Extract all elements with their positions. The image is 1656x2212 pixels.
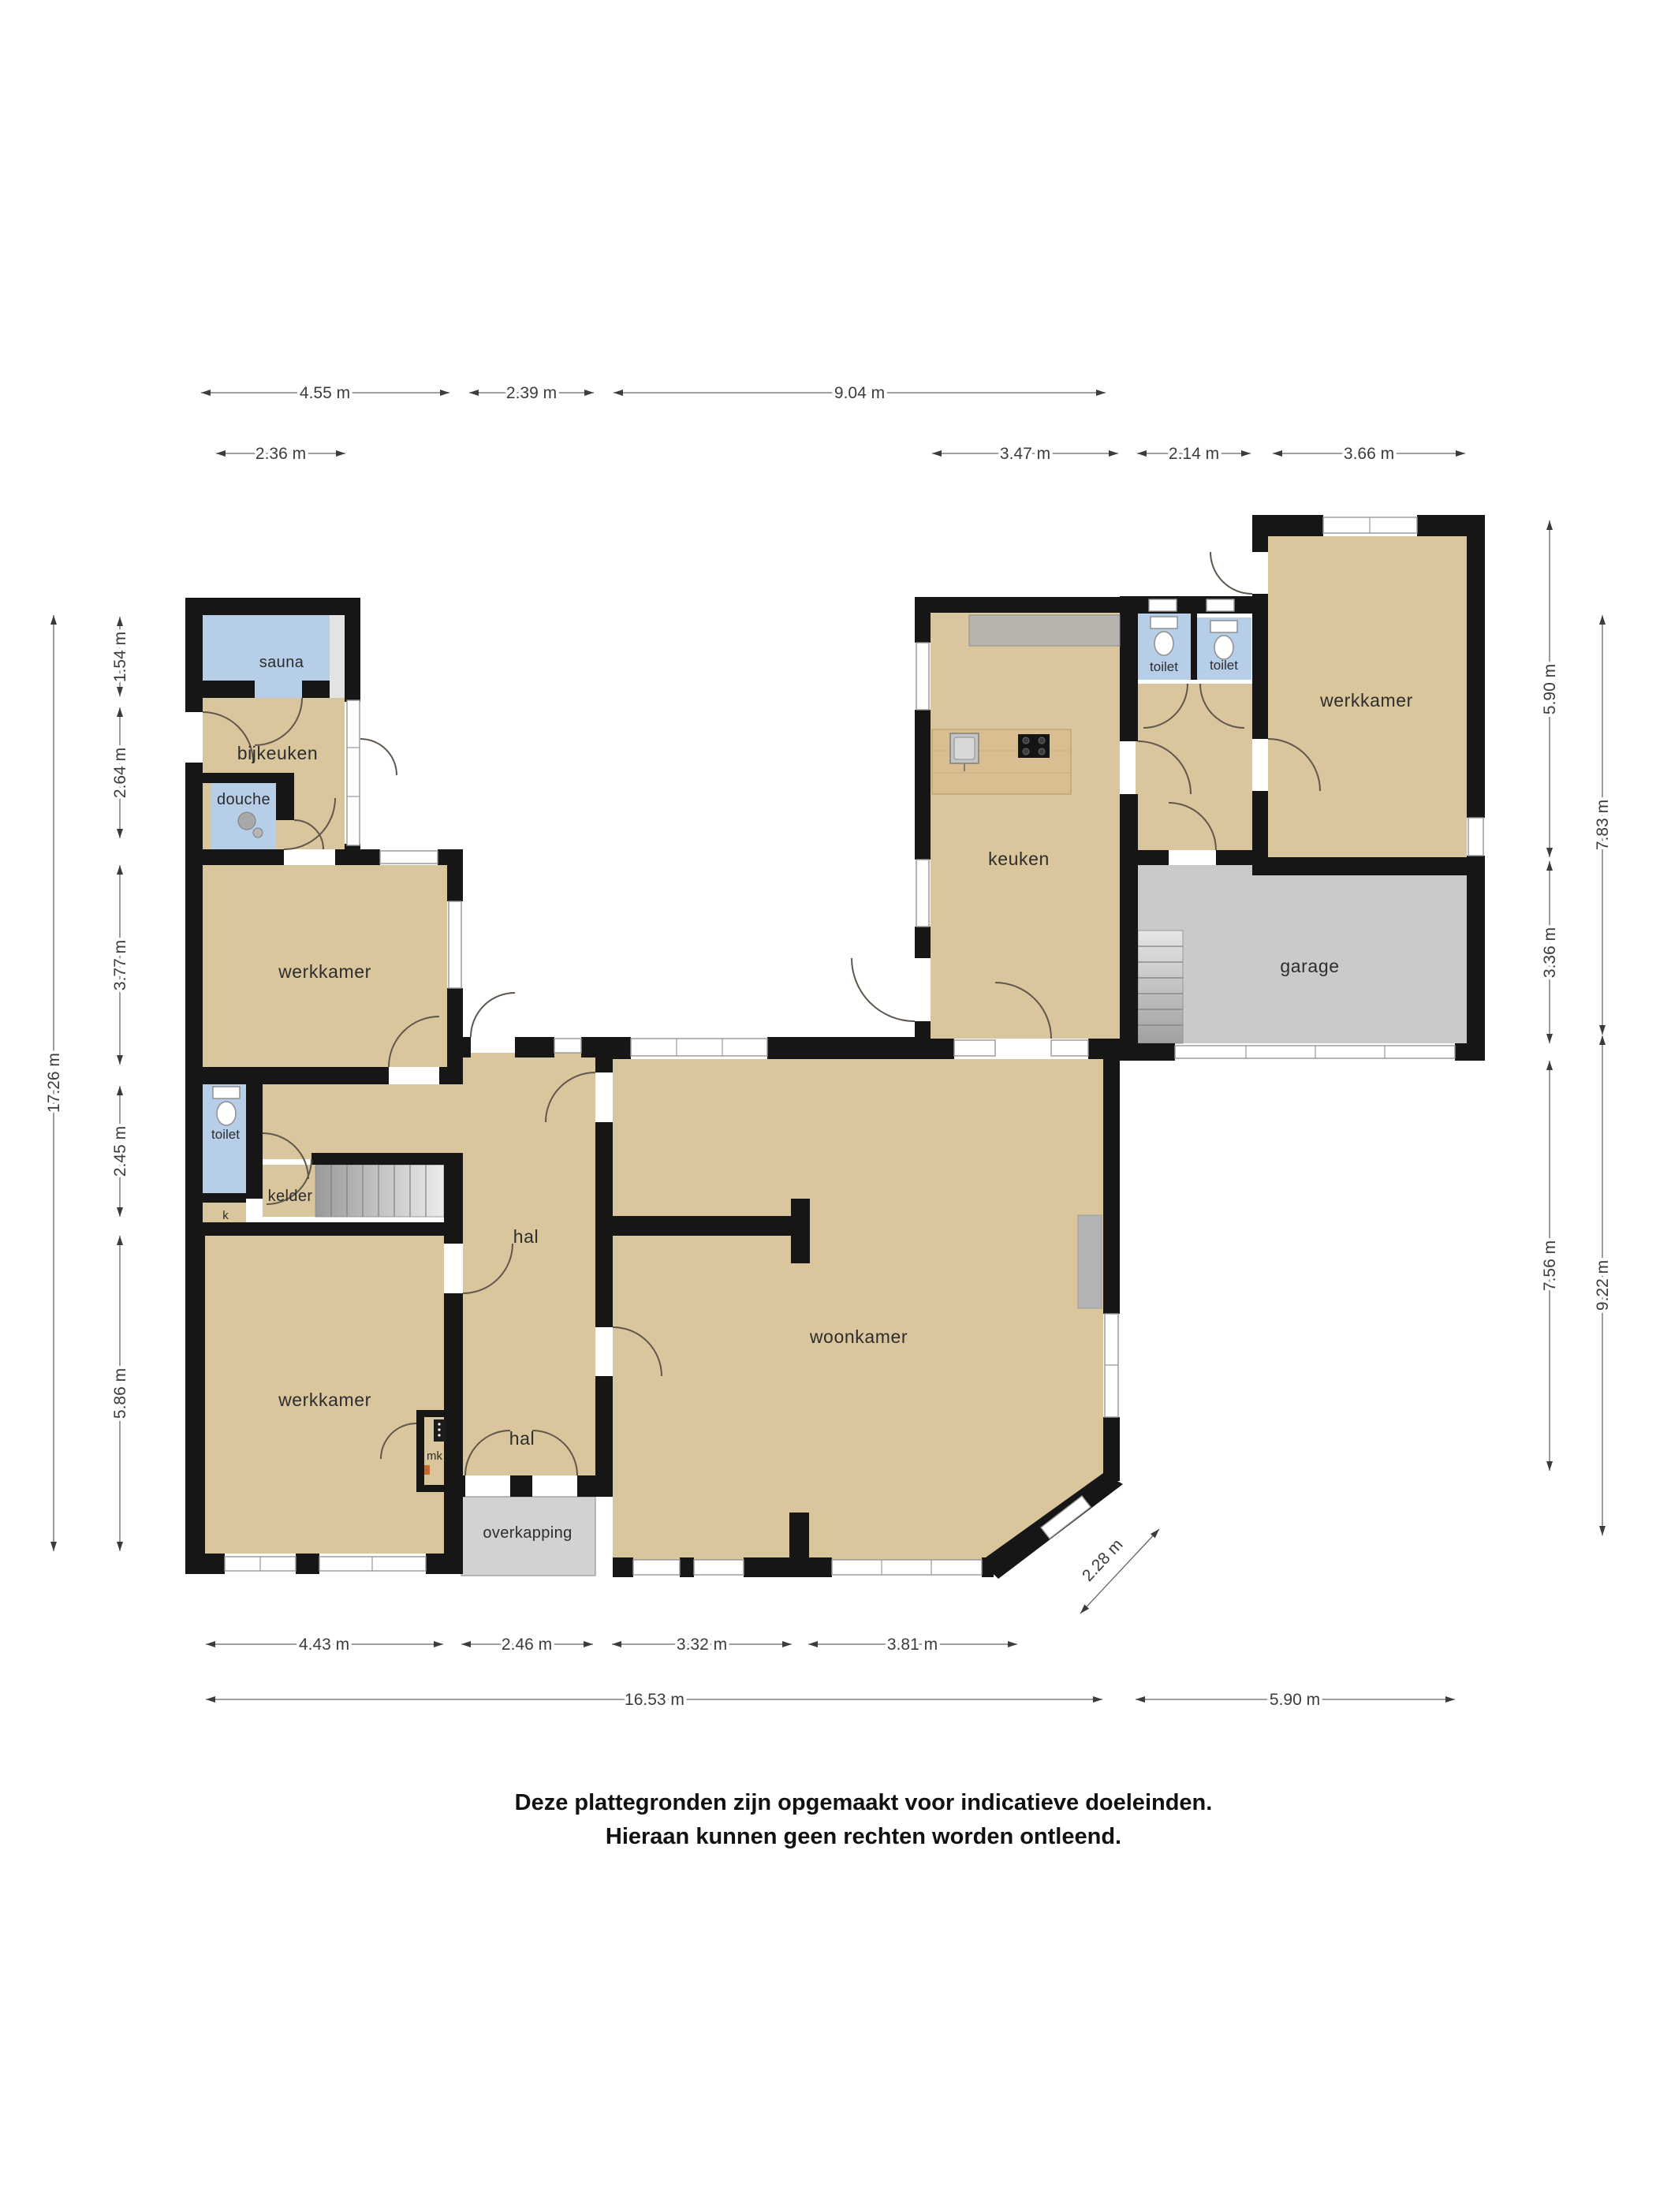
room-label-toilet-top2: toilet <box>1210 658 1238 673</box>
room-label-k: k <box>222 1209 229 1222</box>
room-label-overkapping: overkapping <box>483 1524 572 1542</box>
disclaimer-line1: Deze plattegronden zijn opgemaakt voor i… <box>515 1790 1213 1815</box>
room-label-garage: garage <box>1280 956 1339 976</box>
kitchen-island <box>932 729 1071 794</box>
kitchen-counter <box>969 615 1120 646</box>
dim-bottom1-c: 3.32 m <box>677 1636 727 1654</box>
cooktop-icon <box>1018 734 1050 758</box>
room-label-keuken: keuken <box>988 849 1050 869</box>
room-label-toilet-top1: toilet <box>1150 659 1178 674</box>
room-label-douche: douche <box>217 791 270 808</box>
dim-top2-d: 3.66 m <box>1344 445 1394 463</box>
room-label-woonkamer: woonkamer <box>809 1326 908 1347</box>
disclaimer-line2: Hieraan kunnen geen rechten worden ontle… <box>606 1824 1121 1849</box>
shower-drain-icon <box>253 828 263 837</box>
sauna-bench <box>330 615 345 698</box>
room-label-bijkeuken: bijkeuken <box>237 743 319 763</box>
woonkamer-floor <box>613 1059 1103 1560</box>
dim-left-b: 2.64 m <box>111 748 129 798</box>
dim-left-d: 2.45 m <box>111 1126 129 1177</box>
room-label-sauna: sauna <box>259 654 304 671</box>
anteroom-floor <box>1136 684 1252 850</box>
dim-top1-a: 4.55 m <box>300 384 350 402</box>
keuken-floor <box>931 613 1120 1039</box>
dim-bottom1-b: 2.46 m <box>502 1636 552 1654</box>
room-label-hal-upper: hal <box>513 1226 539 1247</box>
room-label-werkkamer-ll: werkkamer <box>278 1389 371 1410</box>
dim-right-e: 9.22 m <box>1594 1260 1612 1311</box>
room-label-hal-lower: hal <box>509 1428 535 1449</box>
dim-top1-c: 9.04 m <box>834 384 885 402</box>
shower-icon <box>238 812 255 830</box>
hal-floor <box>463 1053 595 1475</box>
disclaimer: Deze plattegronden zijn opgemaakt voor i… <box>515 1790 1213 1849</box>
dim-top1-b: 2.39 m <box>506 384 557 402</box>
room-label-werkkamer-ul: werkkamer <box>278 961 371 982</box>
dim-bottom2-b: 5.90 m <box>1270 1691 1320 1709</box>
dim-right-b: 3.36 m <box>1541 927 1559 978</box>
corridor-floor <box>263 1084 463 1159</box>
dim-top2-a: 2.36 m <box>255 445 306 463</box>
dim-left-c: 3.77 m <box>111 940 129 990</box>
fireplace <box>1078 1215 1102 1308</box>
dim-bottom1-d: 3.81 m <box>887 1636 938 1654</box>
kelder-stairs <box>315 1165 444 1217</box>
floorplan-page: sauna bijkeuken douche werkkamer toilet … <box>0 0 1656 2208</box>
garage-floor <box>1138 865 1467 1043</box>
room-label-werkkamer-tr: werkkamer <box>1319 690 1413 711</box>
dim-left-e: 5.86 m <box>111 1368 129 1419</box>
dim-top2-b: 3.47 m <box>1000 445 1050 463</box>
room-label-mk: mk <box>427 1449 442 1463</box>
dim-bottom2-a: 16.53 m <box>625 1691 684 1709</box>
dim-left-total: 17.26 m <box>45 1053 63 1113</box>
room-label-toilet-left: toilet <box>211 1127 240 1142</box>
dim-right-c: 7.56 m <box>1541 1240 1559 1291</box>
dim-right-a: 5.90 m <box>1541 664 1559 714</box>
room-label-kelder: kelder <box>268 1188 313 1205</box>
dim-right-d: 7.83 m <box>1594 800 1612 850</box>
garage-stairs <box>1138 931 1183 1043</box>
dim-bottom1-a: 4.43 m <box>299 1636 349 1654</box>
dim-diagonal: 2.28 m <box>1079 1535 1127 1585</box>
floorplan-canvas: sauna bijkeuken douche werkkamer toilet … <box>0 0 1656 2208</box>
dim-top2-c: 2.14 m <box>1169 445 1219 463</box>
dim-left-a: 1.54 m <box>111 632 129 682</box>
